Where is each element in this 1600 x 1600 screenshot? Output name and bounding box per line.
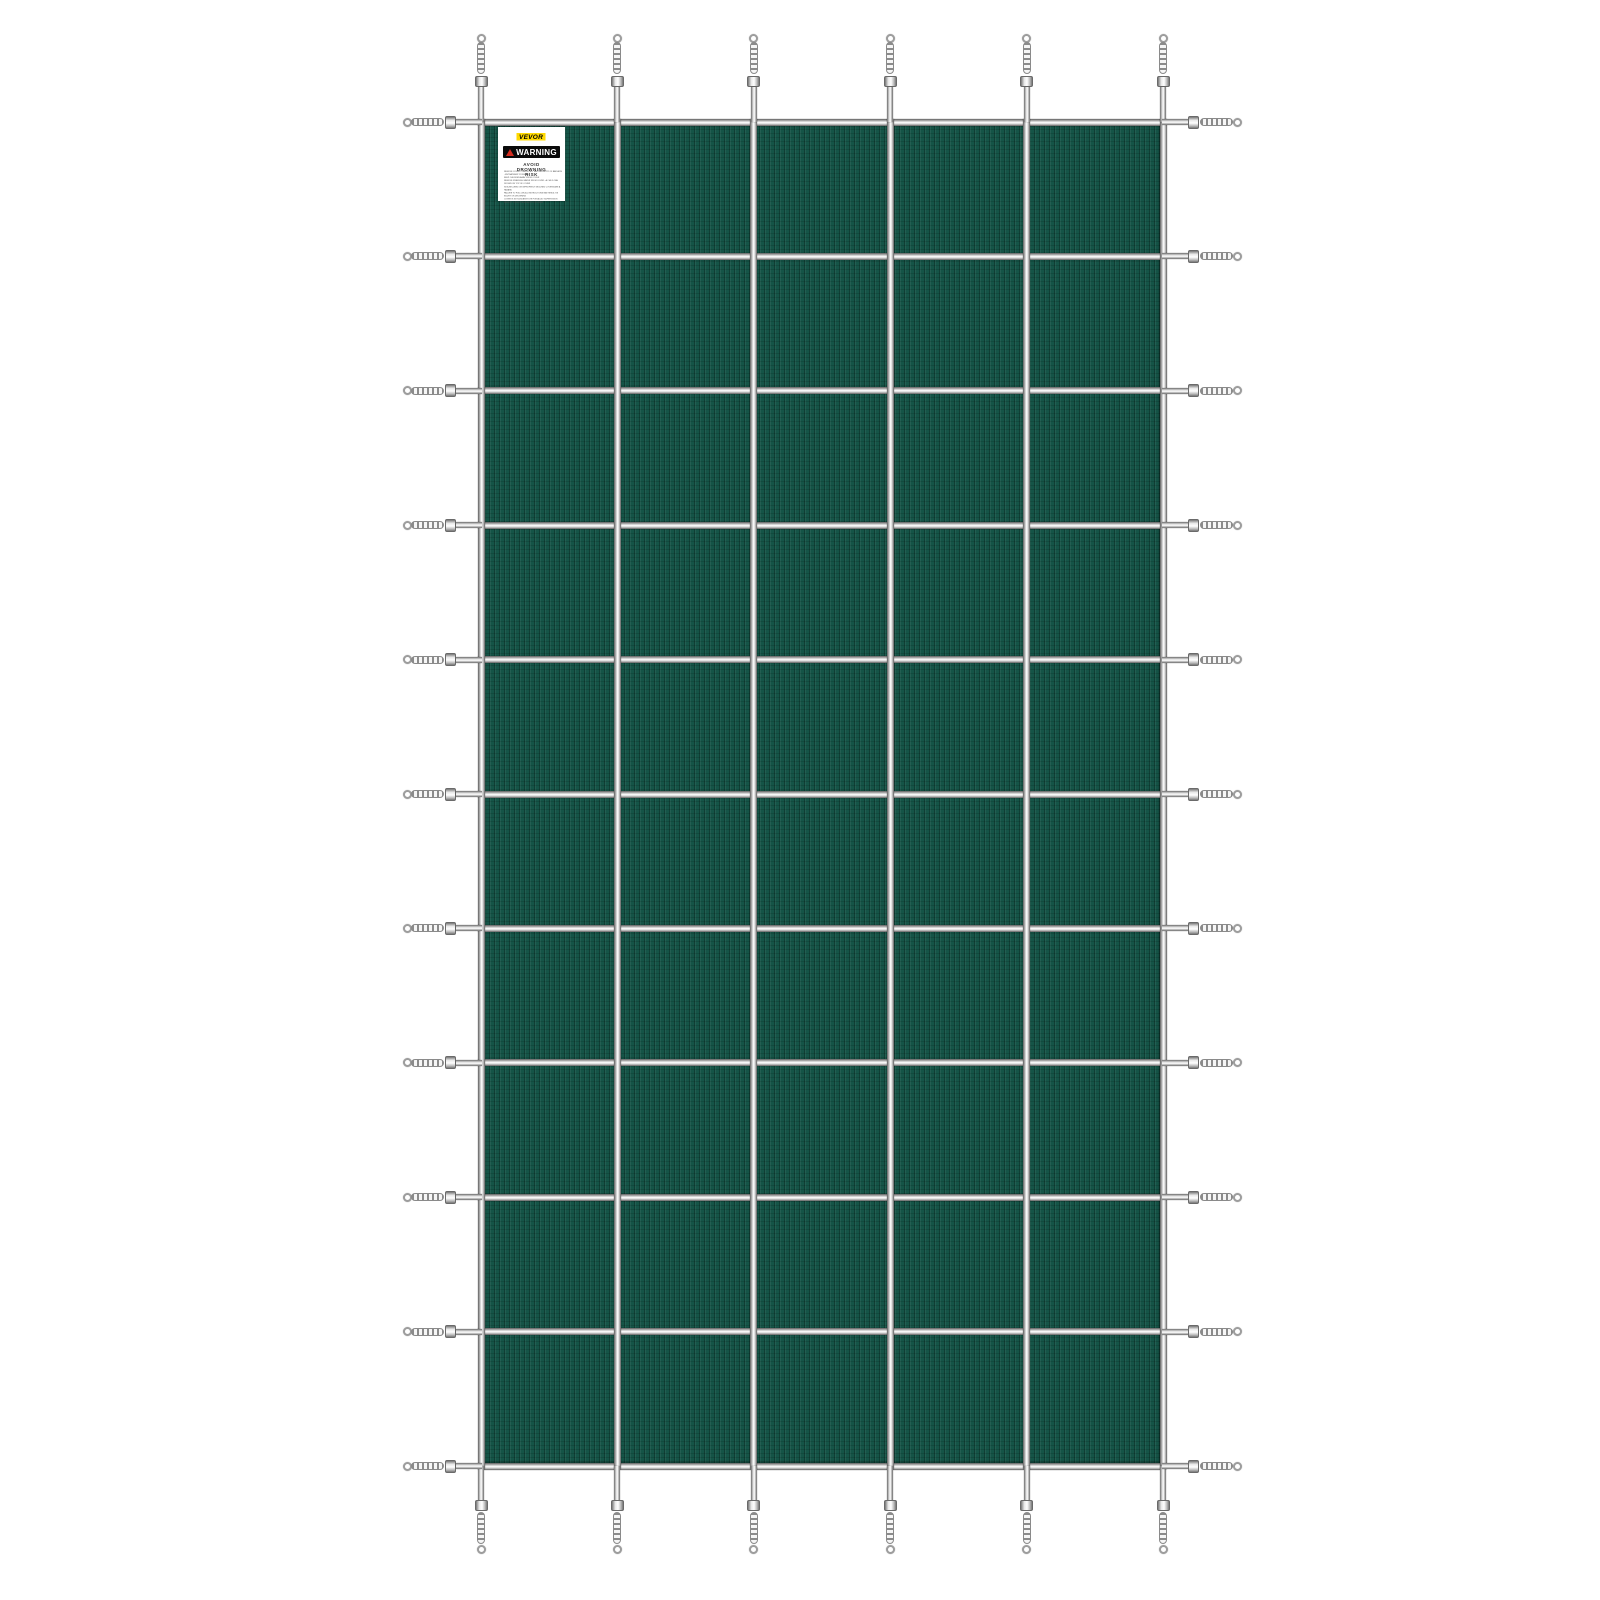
- spring-coil: [613, 1512, 621, 1544]
- tension-spring-assembly: [403, 922, 482, 935]
- risk-heading-row: AVOID DROWNING RISK: [498, 162, 565, 168]
- strap-tail: [456, 522, 482, 528]
- strap-tail: [1024, 87, 1030, 122]
- horizontal-strap: [478, 387, 1166, 394]
- strap-tail: [751, 87, 757, 122]
- tension-spring-assembly: [1162, 1056, 1242, 1069]
- strap-buckle: [445, 788, 456, 801]
- fine-print-line: NON-SECURED OR IMPROPERLY SECURED COVERS…: [504, 186, 562, 192]
- strap-tail: [614, 87, 620, 122]
- tension-spring-assembly: [403, 384, 482, 397]
- tension-spring-assembly: [1162, 653, 1242, 666]
- strap-tail: [456, 925, 482, 931]
- vertical-strap: [887, 119, 894, 1469]
- warning-text: WARNING: [516, 148, 557, 157]
- strap-tail: [1162, 522, 1188, 528]
- spring-loop: [1233, 1462, 1242, 1471]
- strap-tail: [1162, 1463, 1188, 1469]
- strap-tail: [456, 657, 482, 663]
- strap-buckle: [747, 76, 760, 87]
- tension-spring-assembly: [884, 1466, 897, 1554]
- strap-buckle: [884, 1500, 897, 1511]
- fine-print-line: REMOVE STANDING WATER FROM COVER - A CHI…: [504, 179, 562, 185]
- spring-loop: [749, 1545, 758, 1554]
- tension-spring-assembly: [1162, 116, 1242, 129]
- strap-buckle: [1157, 1500, 1170, 1511]
- strap-buckle: [445, 384, 456, 397]
- spring-coil: [477, 42, 485, 74]
- strap-buckle: [445, 1056, 456, 1069]
- tension-spring-assembly: [403, 1191, 482, 1204]
- horizontal-strap: [478, 791, 1166, 798]
- strap-tail: [887, 87, 893, 122]
- spring-coil: [1200, 521, 1233, 529]
- strap-buckle: [445, 1460, 456, 1473]
- strap-buckle: [445, 250, 456, 263]
- tension-spring-assembly: [1162, 519, 1242, 532]
- tension-spring-assembly: [1162, 250, 1242, 263]
- tension-spring-assembly: [1157, 1466, 1170, 1554]
- tension-spring-assembly: [1162, 788, 1242, 801]
- spring-coil: [1023, 1512, 1031, 1544]
- spring-loop: [886, 1545, 895, 1554]
- spring-coil: [411, 924, 444, 932]
- spring-coil: [1200, 1328, 1233, 1336]
- spring-coil: [750, 1512, 758, 1544]
- strap-buckle: [1020, 1500, 1033, 1511]
- warning-label: VEVOR WARNING AVOID DROWNING RISK REMOVE…: [498, 127, 565, 201]
- spring-coil: [411, 1462, 444, 1470]
- tension-spring-assembly: [1020, 1466, 1033, 1554]
- strap-tail: [456, 388, 482, 394]
- strap-tail: [456, 1060, 482, 1066]
- spring-coil: [886, 42, 894, 74]
- spring-loop: [1159, 1545, 1168, 1554]
- strap-tail: [1162, 1194, 1188, 1200]
- tension-spring-assembly: [403, 1325, 482, 1338]
- tension-spring-assembly: [1162, 1325, 1242, 1338]
- strap-tail: [456, 253, 482, 259]
- strap-buckle: [1188, 116, 1199, 129]
- tension-spring-assembly: [1157, 34, 1170, 122]
- spring-coil: [477, 1512, 485, 1544]
- strap-buckle: [747, 1500, 760, 1511]
- label-fine-print: REMOVE COVER COMPLETELY BEFORE ENTRY OF …: [504, 170, 562, 204]
- spring-coil: [411, 252, 444, 260]
- spring-coil: [1200, 924, 1233, 932]
- strap-tail: [614, 1466, 620, 1501]
- strap-buckle: [1188, 1056, 1199, 1069]
- strap-tail: [1162, 791, 1188, 797]
- spring-loop: [1233, 252, 1242, 261]
- spring-coil: [886, 1512, 894, 1544]
- strap-tail: [1162, 925, 1188, 931]
- spring-coil: [411, 1193, 444, 1201]
- spring-coil: [411, 387, 444, 395]
- horizontal-strap: [478, 1463, 1166, 1470]
- horizontal-strap: [478, 119, 1166, 126]
- strap-buckle: [1157, 76, 1170, 87]
- strap-tail: [456, 1463, 482, 1469]
- strap-tail: [751, 1466, 757, 1501]
- strap-buckle: [1188, 1460, 1199, 1473]
- vertical-strap: [1023, 119, 1030, 1469]
- spring-coil: [1200, 252, 1233, 260]
- tension-spring-assembly: [611, 1466, 624, 1554]
- tension-spring-assembly: [747, 1466, 760, 1554]
- spring-coil: [1200, 1059, 1233, 1067]
- spring-loop: [1022, 1545, 1031, 1554]
- strap-buckle: [475, 1500, 488, 1511]
- strap-buckle: [475, 76, 488, 87]
- tension-spring-assembly: [884, 34, 897, 122]
- spring-loop: [1233, 1327, 1242, 1336]
- spring-loop: [1233, 521, 1242, 530]
- spring-coil: [411, 656, 444, 664]
- spring-coil: [1200, 790, 1233, 798]
- fine-print-line: FAILURE TO FOLLOW ALL INSTRUCTIONS MAY R…: [504, 192, 562, 198]
- strap-tail: [456, 1329, 482, 1335]
- product-image: VEVOR WARNING AVOID DROWNING RISK REMOVE…: [0, 0, 1600, 1600]
- brand-badge-row: VEVOR: [498, 132, 565, 142]
- tension-spring-assembly: [475, 1466, 488, 1554]
- tension-spring-assembly: [403, 250, 482, 263]
- spring-coil: [1200, 656, 1233, 664]
- strap-tail: [1162, 657, 1188, 663]
- spring-loop: [1233, 790, 1242, 799]
- fine-print-line: REMOVE COVER COMPLETELY BEFORE ENTRY OF …: [504, 170, 562, 176]
- strap-tail: [456, 791, 482, 797]
- spring-loop: [477, 1545, 486, 1554]
- spring-coil: [1200, 1462, 1233, 1470]
- spring-coil: [1200, 118, 1233, 126]
- horizontal-strap: [478, 1328, 1166, 1335]
- tension-spring-assembly: [403, 116, 482, 129]
- strap-tail: [456, 1194, 482, 1200]
- spring-coil: [411, 118, 444, 126]
- spring-coil: [1159, 42, 1167, 74]
- spring-loop: [1233, 118, 1242, 127]
- spring-coil: [411, 521, 444, 529]
- vertical-strap: [614, 119, 621, 1469]
- strap-buckle: [445, 922, 456, 935]
- tension-spring-assembly: [403, 1460, 482, 1473]
- strap-buckle: [1188, 653, 1199, 666]
- spring-loop: [1233, 1193, 1242, 1202]
- horizontal-strap: [478, 1194, 1166, 1201]
- spring-loop: [1233, 1058, 1242, 1067]
- strap-tail: [887, 1466, 893, 1501]
- strap-buckle: [1188, 250, 1199, 263]
- spring-coil: [613, 42, 621, 74]
- spring-coil: [411, 1059, 444, 1067]
- spring-loop: [1233, 655, 1242, 664]
- strap-tail: [456, 119, 482, 125]
- fine-print-line: INSPECT COVER REGULARLY FOR WEAR: [504, 201, 562, 204]
- strap-tail: [1162, 388, 1188, 394]
- strap-buckle: [445, 1191, 456, 1204]
- spring-coil: [1200, 1193, 1233, 1201]
- strap-buckle: [1188, 1325, 1199, 1338]
- spring-coil: [411, 1328, 444, 1336]
- strap-buckle: [1188, 1191, 1199, 1204]
- strap-buckle: [445, 519, 456, 532]
- tension-spring-assembly: [1162, 1191, 1242, 1204]
- tension-spring-assembly: [475, 34, 488, 122]
- tension-spring-assembly: [403, 653, 482, 666]
- horizontal-strap: [478, 925, 1166, 932]
- spring-loop: [613, 1545, 622, 1554]
- tension-spring-assembly: [1162, 384, 1242, 397]
- tension-spring-assembly: [1162, 1460, 1242, 1473]
- strap-buckle: [611, 1500, 624, 1511]
- tension-spring-assembly: [747, 34, 760, 122]
- tension-spring-assembly: [611, 34, 624, 122]
- spring-coil: [750, 42, 758, 74]
- horizontal-strap: [478, 656, 1166, 663]
- spring-coil: [1023, 42, 1031, 74]
- strap-tail: [1162, 253, 1188, 259]
- spring-coil: [1200, 387, 1233, 395]
- strap-tail: [1162, 1060, 1188, 1066]
- tension-spring-assembly: [403, 519, 482, 532]
- strap-buckle: [884, 76, 897, 87]
- tension-spring-assembly: [1020, 34, 1033, 122]
- tension-spring-assembly: [403, 1056, 482, 1069]
- strap-buckle: [445, 116, 456, 129]
- strap-tail: [1024, 1466, 1030, 1501]
- strap-buckle: [1188, 519, 1199, 532]
- strap-buckle: [1188, 788, 1199, 801]
- strap-buckle: [1020, 76, 1033, 87]
- brand-logo: VEVOR: [517, 133, 546, 141]
- strap-buckle: [445, 1325, 456, 1338]
- vertical-strap: [750, 119, 757, 1469]
- strap-buckle: [1188, 384, 1199, 397]
- spring-coil: [1159, 1512, 1167, 1544]
- spring-loop: [1233, 386, 1242, 395]
- spring-loop: [1233, 924, 1242, 933]
- horizontal-strap: [478, 522, 1166, 529]
- strap-buckle: [445, 653, 456, 666]
- warning-triangle-icon: [506, 149, 514, 156]
- strap-buckle: [611, 76, 624, 87]
- horizontal-strap: [478, 253, 1166, 260]
- tension-spring-assembly: [1162, 922, 1242, 935]
- strap-buckle: [1188, 922, 1199, 935]
- strap-tail: [1162, 1329, 1188, 1335]
- warning-banner: WARNING: [503, 146, 560, 158]
- tension-spring-assembly: [403, 788, 482, 801]
- strap-tail: [1162, 119, 1188, 125]
- spring-coil: [411, 790, 444, 798]
- horizontal-strap: [478, 1059, 1166, 1066]
